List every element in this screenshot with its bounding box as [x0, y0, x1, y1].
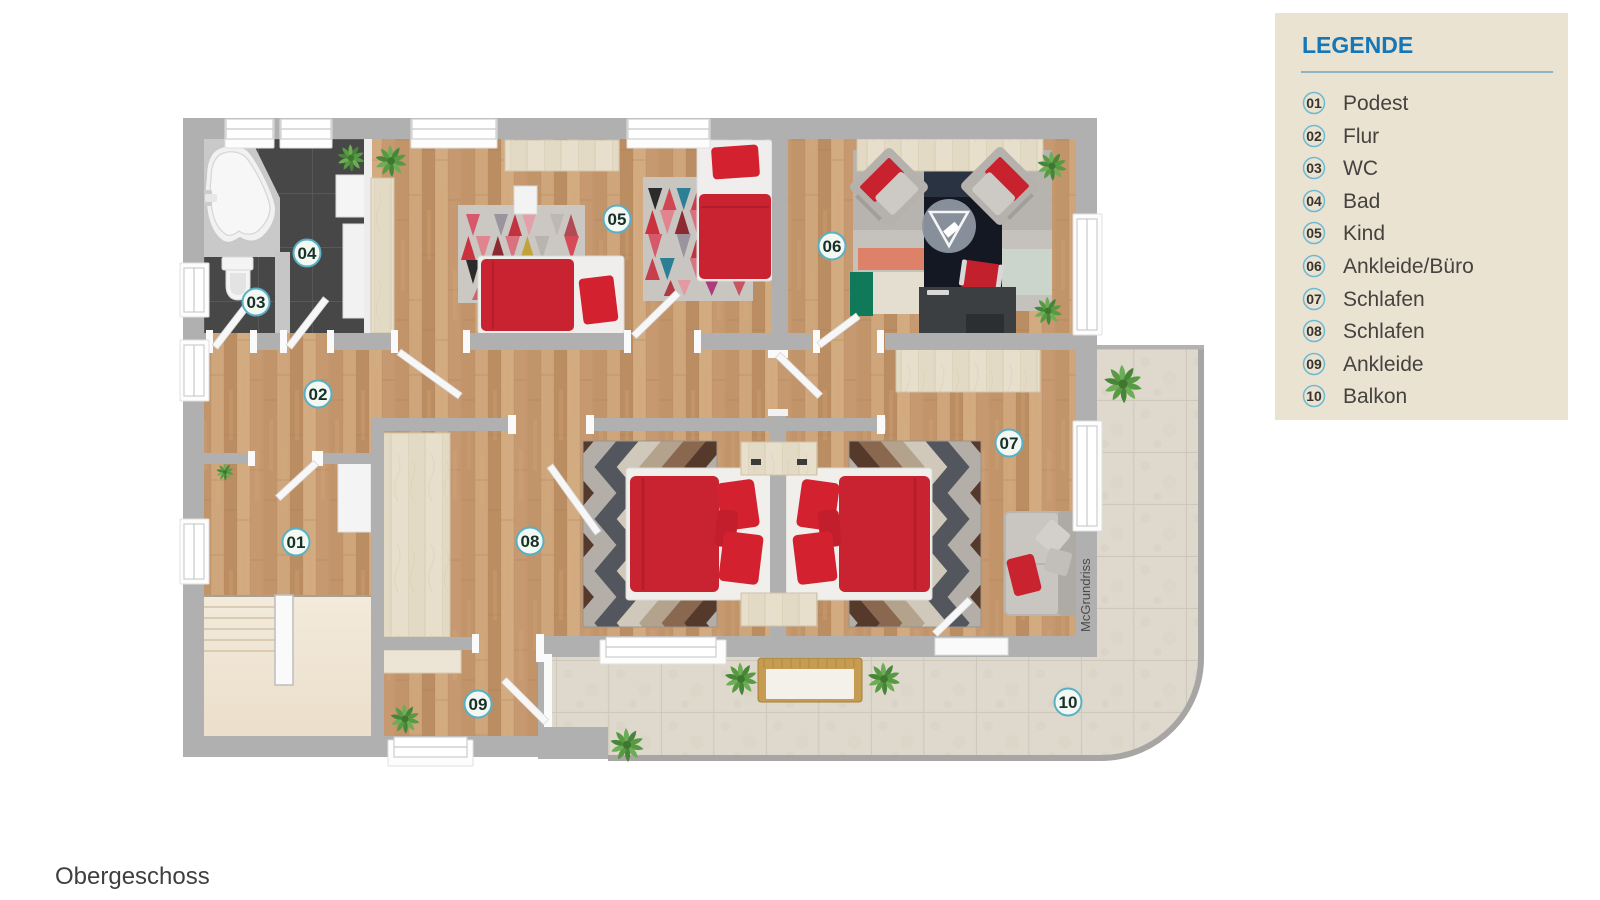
svg-text:06: 06 — [1306, 258, 1322, 274]
svg-text:LEGENDE: LEGENDE — [1302, 32, 1413, 58]
svg-text:02: 02 — [1306, 128, 1322, 144]
svg-text:07: 07 — [1000, 434, 1019, 453]
svg-text:WC: WC — [1343, 157, 1378, 180]
svg-text:07: 07 — [1306, 291, 1322, 307]
svg-text:10: 10 — [1306, 388, 1322, 404]
svg-text:Podest: Podest — [1343, 92, 1409, 115]
svg-text:Schlafen: Schlafen — [1343, 320, 1425, 343]
svg-text:01: 01 — [1306, 95, 1322, 111]
svg-text:10: 10 — [1059, 693, 1078, 712]
svg-text:Kind: Kind — [1343, 222, 1385, 245]
svg-text:Ankleide/Büro: Ankleide/Büro — [1343, 255, 1474, 278]
svg-text:03: 03 — [1306, 160, 1322, 176]
svg-text:Obergeschoss: Obergeschoss — [55, 863, 210, 890]
svg-text:05: 05 — [1306, 225, 1322, 241]
svg-text:Bad: Bad — [1343, 190, 1380, 213]
svg-text:McGrundriss: McGrundriss — [1078, 558, 1093, 632]
svg-text:Schlafen: Schlafen — [1343, 288, 1425, 311]
svg-text:Flur: Flur — [1343, 125, 1379, 148]
svg-text:08: 08 — [521, 532, 540, 551]
svg-text:02: 02 — [309, 385, 328, 404]
svg-text:04: 04 — [298, 244, 317, 263]
svg-text:Balkon: Balkon — [1343, 385, 1407, 408]
svg-text:09: 09 — [1306, 356, 1322, 372]
svg-text:01: 01 — [287, 533, 306, 552]
svg-text:08: 08 — [1306, 323, 1322, 339]
svg-text:06: 06 — [823, 237, 842, 256]
svg-text:05: 05 — [608, 210, 627, 229]
svg-text:04: 04 — [1306, 193, 1322, 209]
svg-text:09: 09 — [469, 695, 488, 714]
svg-text:Ankleide: Ankleide — [1343, 353, 1424, 376]
svg-text:03: 03 — [247, 293, 266, 312]
